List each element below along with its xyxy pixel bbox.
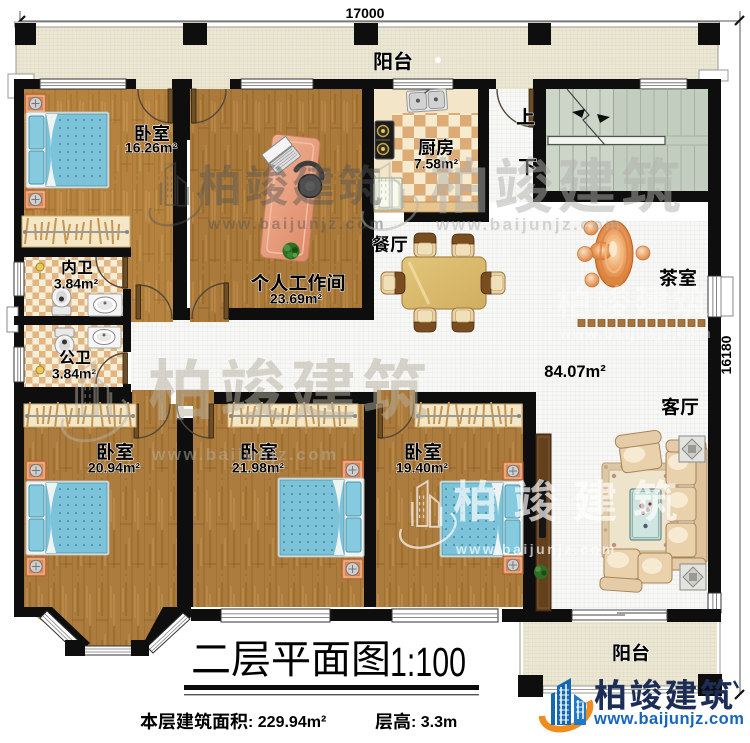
svg-text:17000: 17000: [346, 5, 385, 21]
svg-text:www.baijunjz.com: www.baijunjz.com: [593, 710, 744, 728]
svg-text:3.84m²: 3.84m²: [54, 276, 99, 292]
svg-text:1:100: 1:100: [390, 639, 466, 685]
svg-text:www.baijunjz.com: www.baijunjz.com: [151, 445, 339, 464]
svg-text:www.baijunjz.com: www.baijunjz.com: [207, 216, 386, 233]
svg-text:: 3.3m: : 3.3m: [411, 714, 457, 731]
svg-text:19.40m²: 19.40m²: [396, 460, 448, 476]
svg-text:: 229.94m²: : 229.94m²: [248, 714, 326, 731]
svg-text:20.94m²: 20.94m²: [88, 460, 140, 476]
svg-text:23.69m²: 23.69m²: [270, 291, 322, 307]
svg-text:www.baijunjz.com: www.baijunjz.com: [455, 541, 617, 557]
svg-text:84.07m²: 84.07m²: [544, 363, 606, 381]
svg-text:www.baijunjz.com: www.baijunjz.com: [435, 215, 623, 234]
svg-text:www.baijunjz.com: www.baijunjz.com: [559, 325, 713, 341]
svg-text:16.26m²: 16.26m²: [125, 140, 177, 156]
